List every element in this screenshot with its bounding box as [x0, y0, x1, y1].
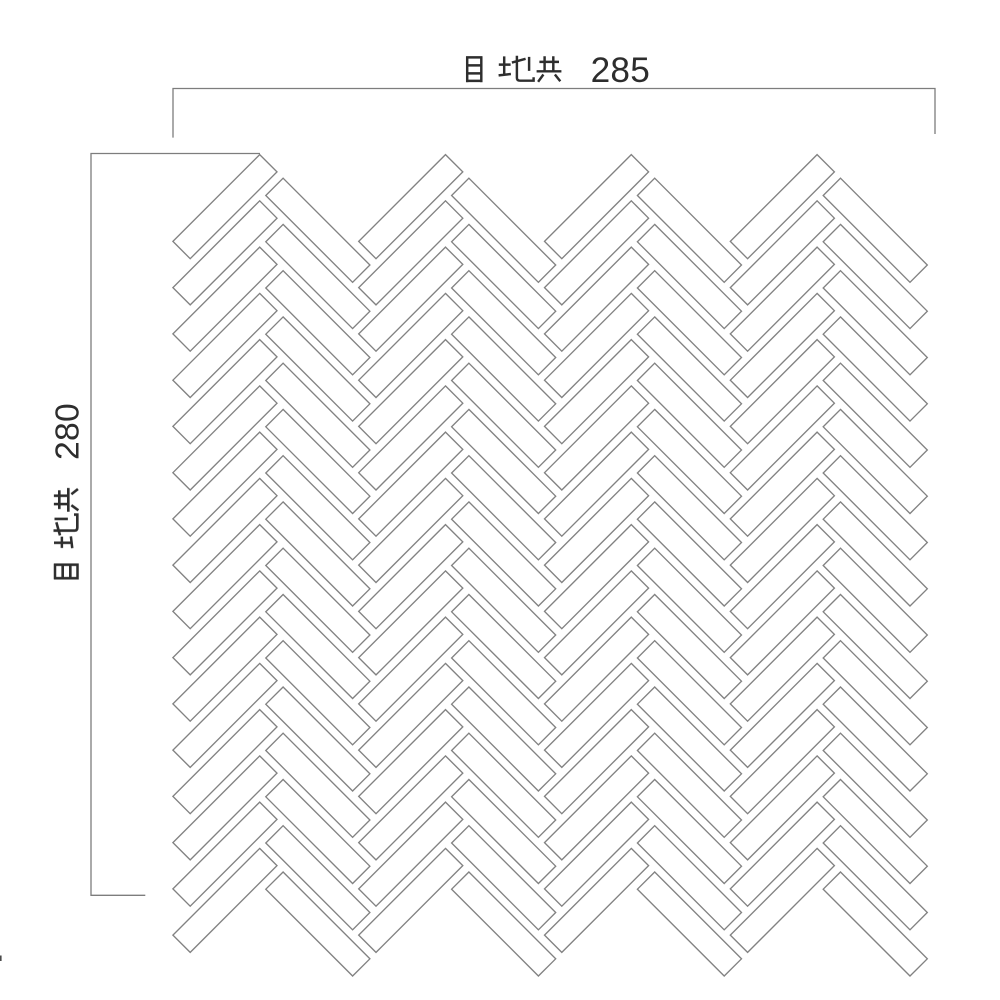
svg-text:280: 280 [48, 403, 86, 460]
svg-text:285: 285 [591, 51, 650, 90]
